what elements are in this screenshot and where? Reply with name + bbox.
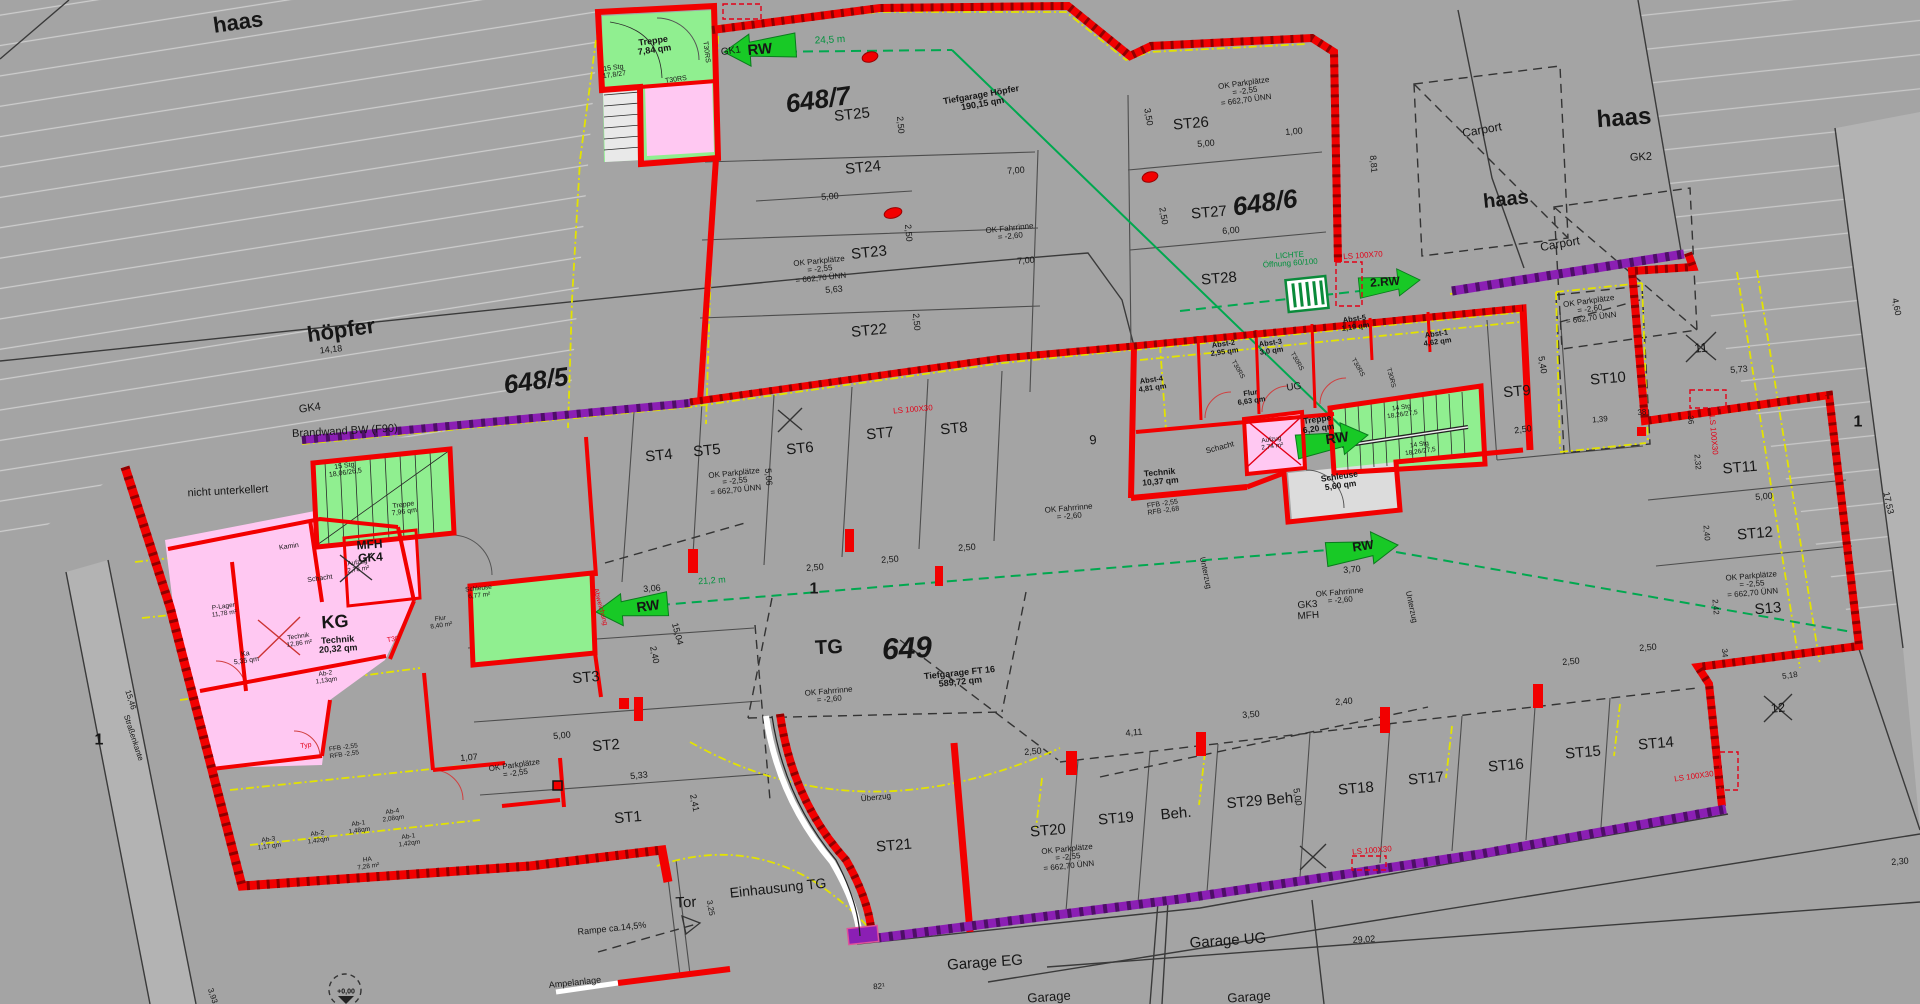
- room-white-top-stair: [603, 86, 642, 162]
- floor-plan-sheet: haasGK1höpfer648/5GK414,18Treppe 7,84 qm…: [0, 0, 1920, 1004]
- floor-plan-svg: [0, 0, 1920, 1004]
- room-pink-abstellraum: [645, 80, 714, 156]
- purple-ramp-block: [847, 925, 879, 944]
- room-green-schleuse: [470, 573, 595, 665]
- lichtschacht-icon: [1285, 276, 1328, 312]
